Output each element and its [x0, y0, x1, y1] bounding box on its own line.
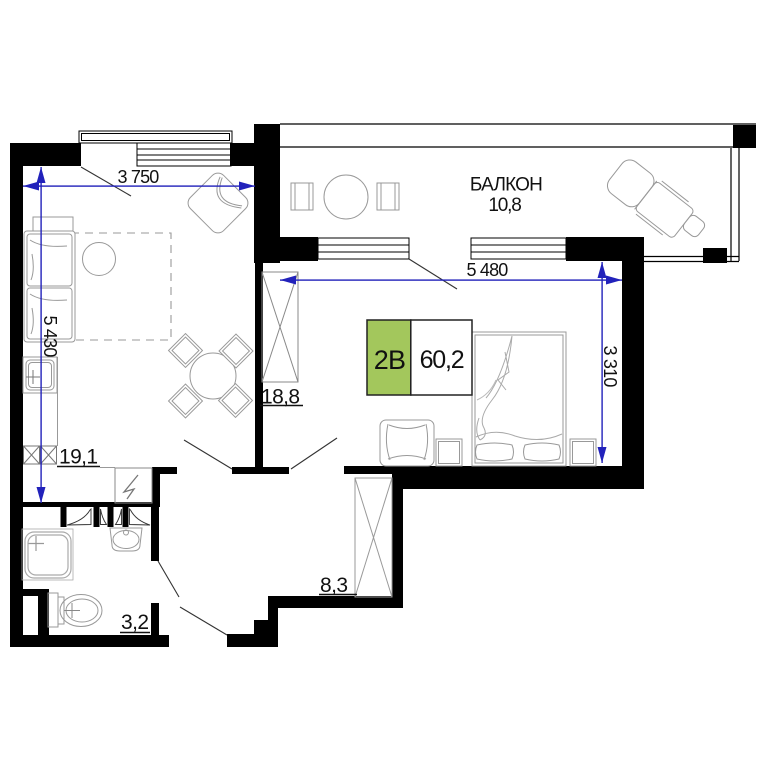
- svg-text:3 310: 3 310: [600, 345, 620, 387]
- svg-text:5 430: 5 430: [40, 315, 60, 357]
- svg-text:10,8: 10,8: [488, 195, 521, 216]
- svg-text:5 480: 5 480: [466, 260, 508, 280]
- svg-text:19,1: 19,1: [59, 446, 97, 469]
- svg-text:2В: 2В: [374, 345, 405, 375]
- svg-text:3,2: 3,2: [121, 611, 148, 634]
- svg-text:БАЛКОН: БАЛКОН: [470, 175, 542, 196]
- svg-text:60,2: 60,2: [420, 346, 464, 374]
- svg-text:3 750: 3 750: [117, 167, 159, 187]
- svg-text:8,3: 8,3: [320, 574, 347, 597]
